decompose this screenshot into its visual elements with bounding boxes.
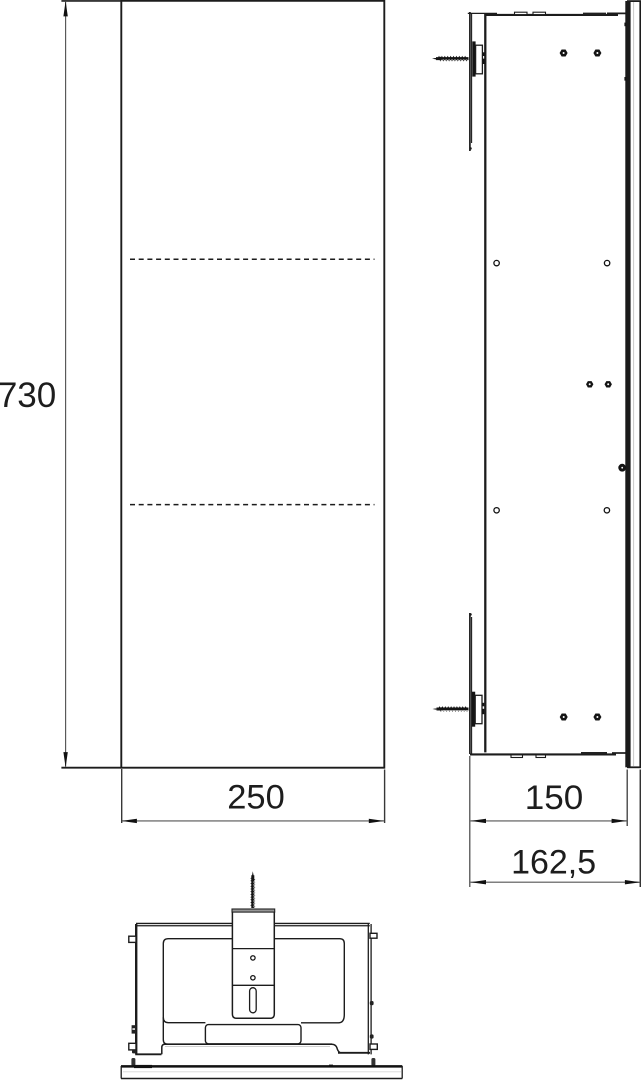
svg-text:162,5: 162,5	[511, 844, 596, 882]
svg-text:250: 250	[227, 779, 285, 817]
svg-text:730: 730	[0, 376, 56, 415]
svg-text:150: 150	[525, 779, 584, 817]
